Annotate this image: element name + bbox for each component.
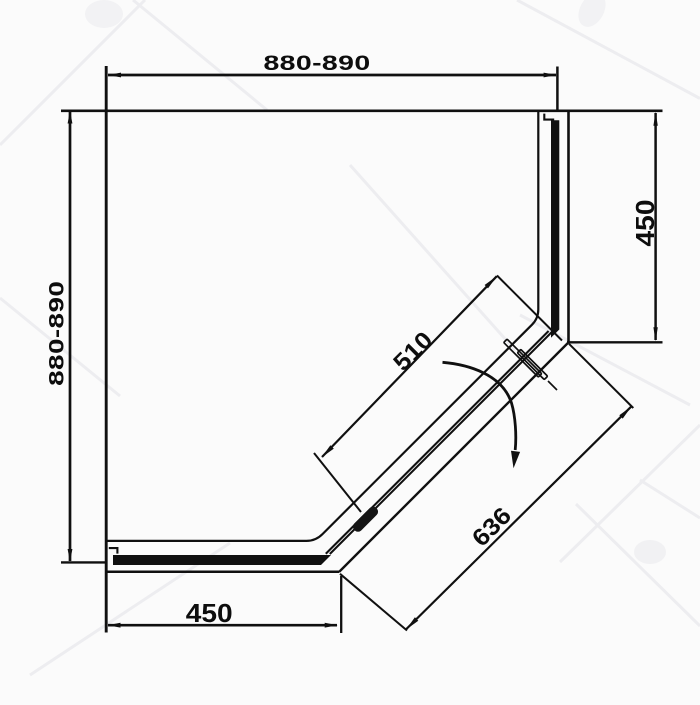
- svg-text:880-890: 880-890: [46, 281, 69, 386]
- svg-text:880-890: 880-890: [263, 52, 370, 76]
- svg-text:450: 450: [186, 599, 233, 628]
- svg-text:450: 450: [631, 200, 660, 247]
